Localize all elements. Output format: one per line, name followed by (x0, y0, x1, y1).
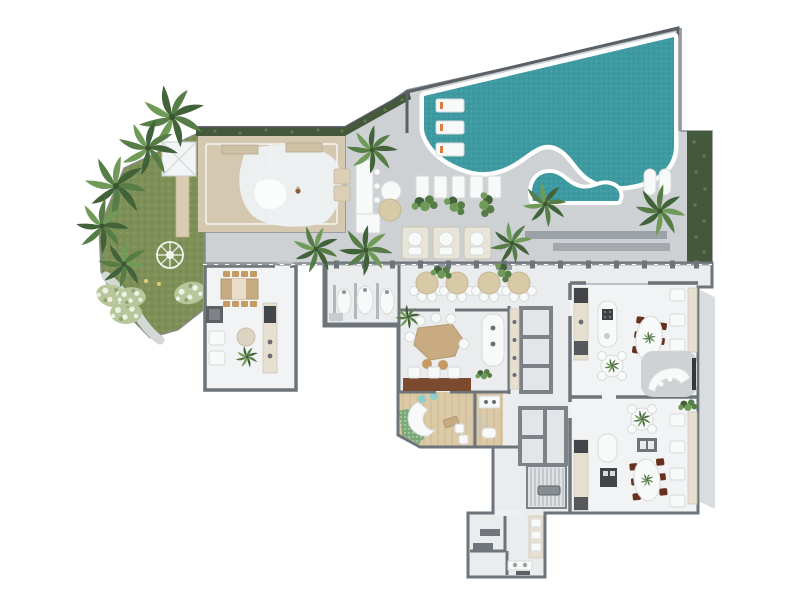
toilet (531, 531, 541, 539)
bench (473, 543, 493, 550)
fridge (574, 288, 588, 303)
kitchen-island (598, 301, 617, 347)
kitchen-island (598, 434, 617, 462)
range-appliance (264, 306, 276, 323)
armchair (209, 351, 225, 365)
salon-chair (459, 435, 468, 444)
window-counter (688, 412, 697, 504)
building (203, 261, 715, 577)
chair (459, 339, 469, 349)
court-bench (222, 145, 258, 154)
floor-plan-canvas (0, 0, 811, 600)
oven (574, 497, 588, 510)
window-counter (688, 288, 697, 352)
stool (670, 495, 685, 507)
elevator-core-upper (510, 306, 553, 394)
pantry-counter (479, 396, 500, 408)
chair (446, 314, 456, 324)
flower-bed (117, 287, 146, 307)
elevator-cab (523, 310, 549, 335)
elevator-cab (522, 439, 543, 463)
hedge-right (687, 131, 712, 262)
stool (670, 468, 685, 480)
tv-cabinet-inner (209, 309, 220, 320)
stair-rail (538, 486, 560, 495)
court-play-blob-inner (255, 179, 287, 209)
counter-chair (408, 367, 420, 378)
timber-counter (403, 378, 471, 391)
stool (670, 441, 685, 453)
lagoon-lounger (644, 169, 656, 195)
cooktop (602, 309, 613, 320)
toilet (531, 543, 541, 551)
elevator-cab (523, 339, 549, 364)
bench (480, 529, 500, 536)
floor-mat (516, 571, 530, 575)
right-balcony (700, 290, 715, 509)
pouf (237, 328, 255, 346)
sink-counter (508, 561, 532, 570)
elevator-cab (522, 410, 543, 435)
restroom-door-gap (496, 510, 522, 516)
person-figure-head (297, 187, 300, 190)
armchair (209, 331, 225, 345)
court-lounger (334, 186, 350, 201)
court-bench (286, 143, 322, 152)
service-shaft (547, 410, 564, 463)
wall-tv (692, 358, 696, 390)
toilet (531, 519, 541, 527)
salon-chair (455, 424, 464, 433)
chair (415, 316, 425, 326)
court-play-blob (239, 145, 341, 227)
stool (670, 314, 685, 326)
bench (329, 313, 343, 321)
bar-island (482, 314, 504, 366)
fixture (482, 428, 496, 438)
stairwell (527, 466, 566, 508)
partition (376, 283, 379, 319)
oven (574, 341, 588, 355)
sport-court (198, 136, 350, 232)
chair (431, 313, 441, 323)
round-table-tan (379, 199, 401, 221)
stool (670, 414, 685, 426)
in-pool-loungers (436, 99, 464, 156)
counter-chair (428, 367, 440, 378)
deck-bench (525, 231, 667, 239)
round-table-white (381, 181, 401, 201)
fridge (574, 440, 588, 453)
cabanas (402, 227, 491, 259)
oven-tower (600, 468, 617, 487)
floor-plan-svg (0, 0, 811, 600)
stool (670, 289, 685, 301)
elevator-cab (523, 368, 549, 390)
sun-loungers (416, 176, 501, 198)
table-runner (232, 279, 246, 299)
tv-lounge-niche (641, 351, 697, 397)
elevator-core-lower (518, 406, 568, 466)
chair (405, 332, 415, 342)
court-lounger (334, 169, 350, 184)
aqua-stool (418, 395, 426, 403)
deck-bench (553, 243, 670, 251)
counter-chair (448, 367, 460, 378)
compass-paving (156, 241, 184, 269)
stool (670, 339, 685, 351)
